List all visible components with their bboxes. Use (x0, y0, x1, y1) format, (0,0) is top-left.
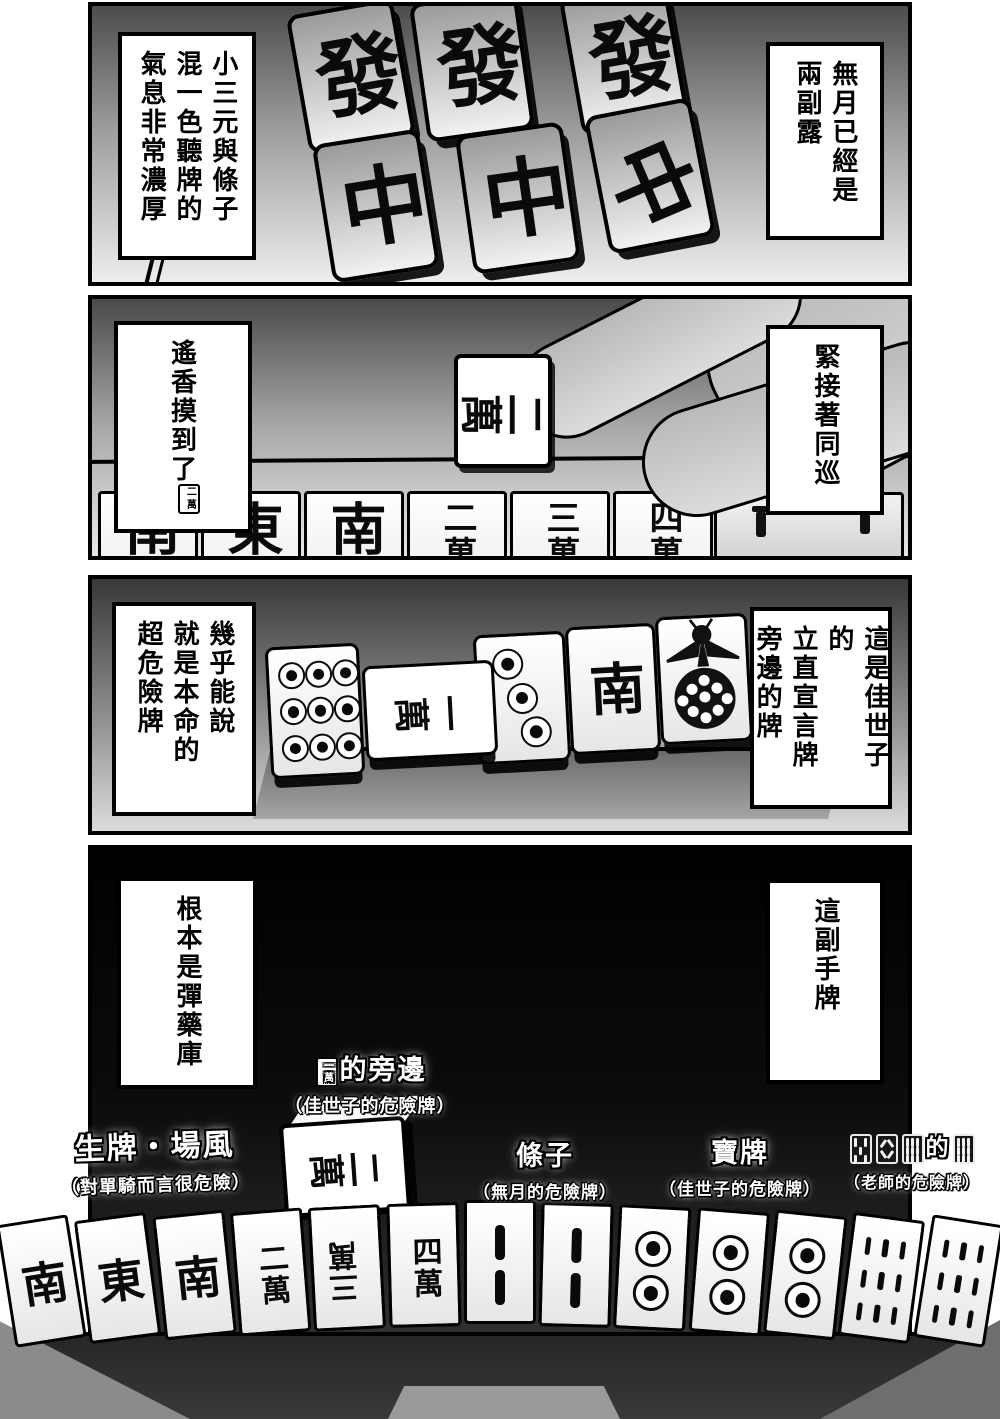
rack-peg (756, 511, 766, 537)
annotation-subtitle: （無月的危險牌） (460, 1178, 630, 1203)
tile-man: 二萬 (454, 354, 552, 468)
caption-text: 無月已經是 兩副露 (789, 60, 861, 222)
annotation-title: 的 (832, 1128, 992, 1164)
caption-text: 幾乎能說 就是本命的 超危險牌 (130, 620, 238, 798)
tile-wind: 南 (0, 1220, 87, 1348)
tile-pin (265, 643, 366, 780)
panel-2: 二萬 南東南二萬三萬四萬 遙香摸到了二萬 緊接著同巡 (88, 295, 912, 560)
tile-man: 一萬 (362, 660, 499, 762)
tile-pin (613, 1211, 691, 1333)
annotation-souzu: 條子 （無月的危險牌） (460, 1134, 630, 1203)
tile-dragon: 中 (312, 128, 441, 283)
tile-sou (838, 1218, 925, 1344)
tile-pin (688, 1213, 769, 1336)
tile-icon-二萬: 二萬 (178, 484, 200, 514)
tile-icon-九索 (953, 1134, 975, 1164)
caption-text: 緊接著同巡 (807, 343, 843, 497)
tile-dragon: 中 (584, 97, 717, 255)
caption-box-left: 小三元與條子 混一色聽牌的 氣息非常濃厚 (118, 32, 256, 260)
panel-1: 發發發中中中 小三元與條子 混一色聽牌的 氣息非常濃厚 無月已經是 兩副露 (88, 2, 912, 286)
annotation-subtitle: （佳世子的危險牌） (645, 1175, 835, 1200)
annotation-dora: 寶牌 （佳世子的危險牌） (645, 1131, 835, 1200)
caption-box-right: 這副手牌 (766, 879, 884, 1084)
tile-sou (464, 1206, 536, 1324)
caption-text: 根本是彈藥庫 (169, 895, 205, 1071)
tile-man: 三萬 (308, 1211, 386, 1333)
caption-text: 這副手牌 (807, 897, 843, 1066)
caption-box-right: 這是佳世子的 立直宣言牌 旁邊的牌 (750, 607, 892, 809)
tile-bird (655, 613, 754, 746)
annotation-fresh-wind: 生牌・場風 （對單騎而言很危險） (39, 1118, 271, 1201)
caption-text: 遙香摸到了二萬 (164, 339, 203, 515)
tile-man: 二萬 (230, 1213, 311, 1336)
tile-icon-九索 (902, 1134, 924, 1164)
table-mat (388, 1386, 620, 1419)
caption-text: 小三元與條子 混一色聽牌的 氣息非常濃厚 (133, 50, 241, 242)
annotation-title: 一萬的旁邊 (255, 1048, 485, 1087)
caption-box-left: 幾乎能說 就是本命的 超危險牌 (112, 602, 256, 816)
manga-page: 發發發中中中 小三元與條子 混一色聽牌的 氣息非常濃厚 無月已經是 兩副露 二萬… (0, 0, 1000, 1419)
tile-wind: 南 (153, 1215, 237, 1340)
tile-man: 四萬 (386, 1208, 461, 1328)
annotation-title: 條子 (460, 1134, 630, 1173)
annotation-title: 生牌・場風 (39, 1118, 270, 1170)
tile-icon-八索 (876, 1134, 898, 1164)
tile-wind: 東 (75, 1218, 162, 1344)
tile-icon-五索 (850, 1134, 872, 1164)
tile-dragon: 發 (409, 2, 535, 143)
tile-man: 三萬 (510, 491, 610, 560)
tile-wind: 南 (304, 491, 404, 560)
caption-box-right: 無月已經是 兩副露 (766, 42, 884, 240)
annotation-title: 寶牌 (645, 1131, 835, 1170)
annotation-subtitle: （佳世子的危險牌） (255, 1092, 485, 1118)
tile-pin (763, 1215, 847, 1340)
tile-wind: 南 (565, 623, 662, 756)
annotation-soba: 一萬的旁邊 （佳世子的危險牌） (255, 1048, 485, 1118)
tile-sou (539, 1208, 614, 1328)
tile-dragon: 中 (455, 121, 581, 275)
tile-sou (913, 1220, 1000, 1348)
tile-man: 二萬 (407, 491, 507, 560)
analyzed-hand-row: 南東南二萬三萬四萬 (2, 1206, 998, 1336)
panel-3: 一萬南 幾乎能說 就是本命的 超危險牌 這是佳世子的 立直宣言牌 旁邊的牌 (88, 575, 912, 835)
caption-box-right: 緊接著同巡 (766, 325, 884, 515)
tile-icon-一萬: 一萬 (316, 1057, 338, 1087)
caption-text: 這是佳世子的 立直宣言牌 旁邊的牌 (749, 625, 893, 791)
annotation-sou-group: 的 （老師的危險牌） (832, 1128, 992, 1193)
annotation-subtitle: （老師的危險牌） (832, 1169, 992, 1193)
caption-box-left: 遙香摸到了二萬 (114, 321, 252, 533)
caption-box-left: 根本是彈藥庫 (117, 877, 257, 1089)
